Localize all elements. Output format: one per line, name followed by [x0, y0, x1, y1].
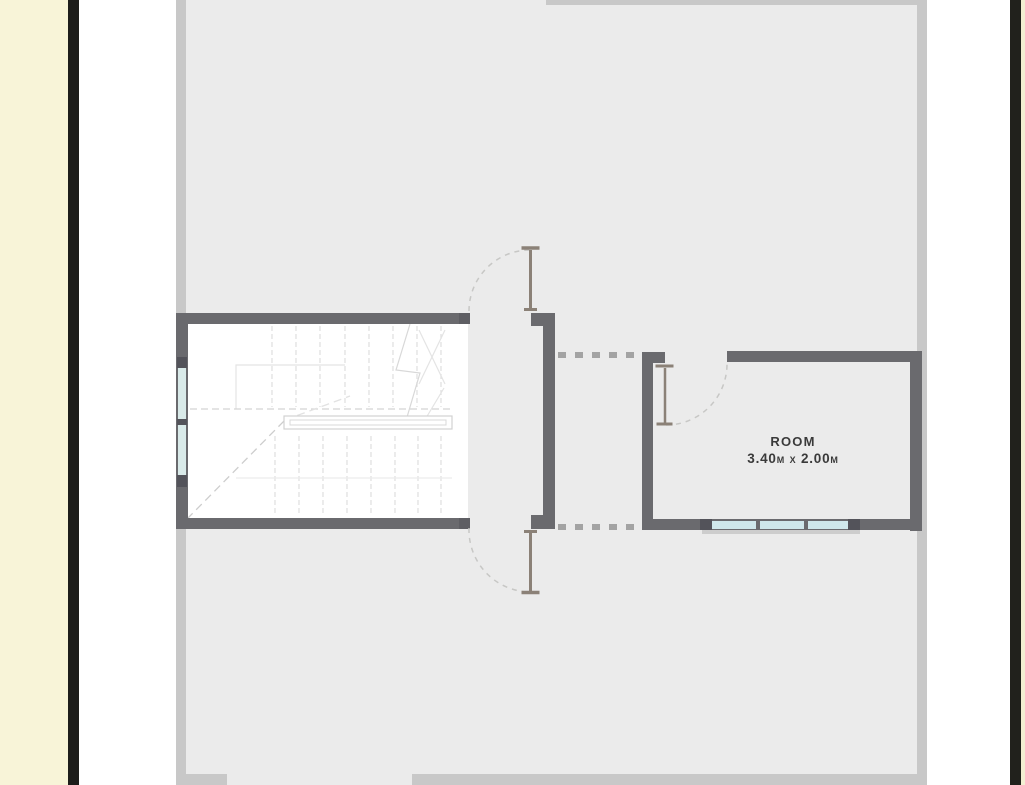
- room-dimensions-label: 3.40m x 2.00m: [747, 451, 838, 466]
- room-window-band: [700, 519, 860, 534]
- window-cap: [700, 519, 712, 530]
- window-sill: [702, 530, 860, 534]
- window-cap: [177, 357, 187, 368]
- window-pane: [808, 521, 848, 529]
- window-mullion: [177, 419, 187, 425]
- floor-plan-drawing: ROOM 3.40m x 2.00m: [0, 0, 1025, 785]
- window-pane: [712, 521, 756, 529]
- room-name-label: ROOM: [770, 434, 815, 449]
- window-cap: [177, 475, 187, 487]
- window-pane: [178, 368, 186, 419]
- stair-window-band: [177, 357, 187, 487]
- window-pane: [178, 425, 186, 475]
- staircase: [176, 313, 470, 529]
- window-pane: [760, 521, 804, 529]
- stair-handrail: [284, 416, 452, 429]
- window-cap: [848, 519, 860, 530]
- floorplan-page: ROOM 3.40m x 2.00m: [0, 0, 1025, 785]
